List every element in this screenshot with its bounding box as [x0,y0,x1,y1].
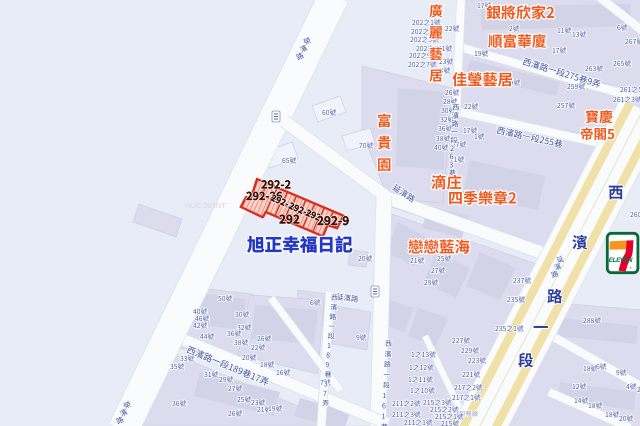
svg-text:ELEVEN: ELEVEN [609,257,633,264]
svg-text:HUC 203NT: HUC 203NT [185,201,226,210]
